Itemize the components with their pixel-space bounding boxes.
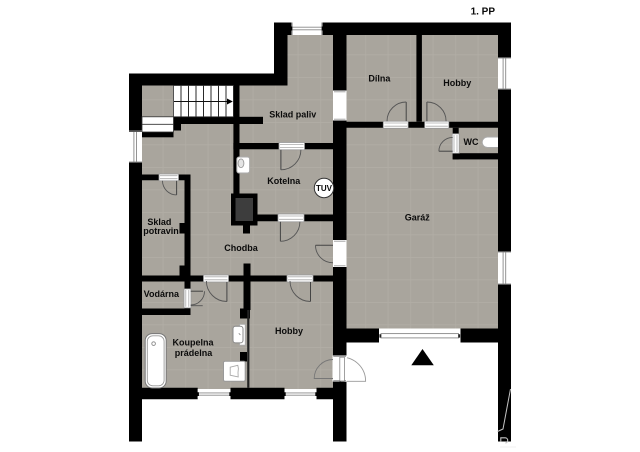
svg-text:potravin: potravin	[143, 226, 179, 236]
svg-text:Koupelna: Koupelna	[172, 338, 214, 348]
svg-text:Vodárna: Vodárna	[144, 289, 180, 299]
svg-text:prádelna: prádelna	[175, 348, 214, 358]
svg-text:Garáž: Garáž	[405, 213, 431, 223]
svg-text:Kotelna: Kotelna	[267, 176, 301, 186]
svg-text:Dílna: Dílna	[368, 73, 391, 83]
svg-text:Hobby: Hobby	[443, 78, 471, 88]
svg-text:Sklad paliv: Sklad paliv	[269, 110, 316, 120]
svg-text:WC: WC	[464, 137, 479, 147]
svg-text:TUV: TUV	[316, 184, 333, 193]
svg-text:Hobby: Hobby	[275, 326, 303, 336]
svg-text:Chodba: Chodba	[224, 243, 258, 253]
svg-text:1. PP: 1. PP	[471, 7, 496, 18]
